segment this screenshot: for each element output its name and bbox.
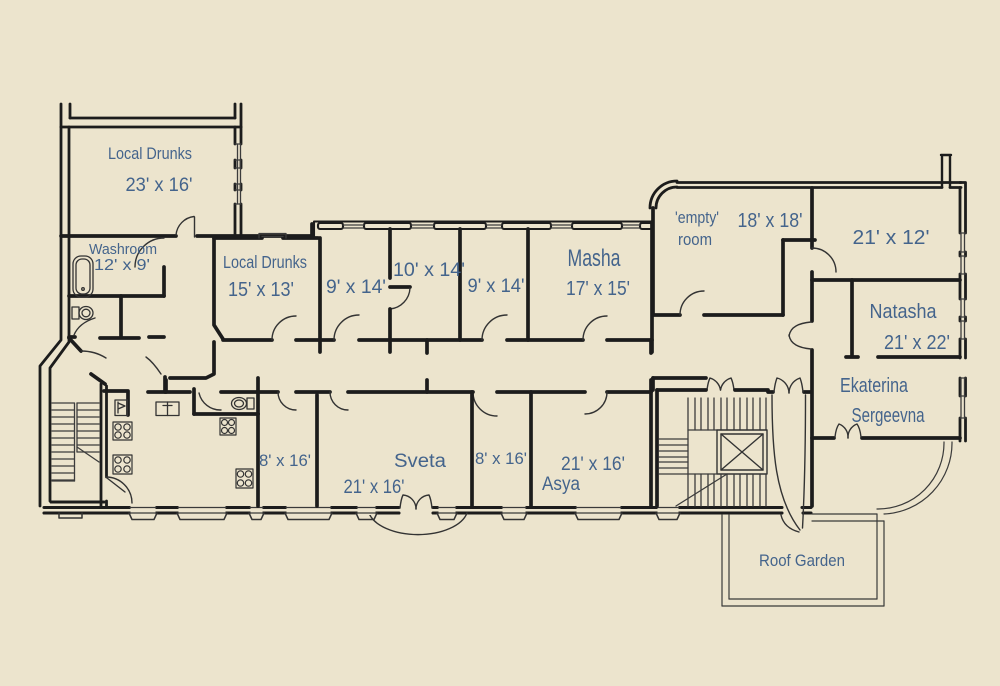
svg-text:9' x 14': 9' x 14' xyxy=(468,276,525,297)
svg-text:23' x 16': 23' x 16' xyxy=(126,175,193,196)
svg-text:17' x 15': 17' x 15' xyxy=(566,278,630,300)
svg-text:9' x 14': 9' x 14' xyxy=(326,277,386,298)
svg-text:Natasha: Natasha xyxy=(870,301,938,323)
svg-text:12' x 9': 12' x 9' xyxy=(94,257,150,274)
svg-text:Washroom: Washroom xyxy=(89,242,157,258)
svg-text:Sveta: Sveta xyxy=(394,451,446,472)
svg-text:21' x 16': 21' x 16' xyxy=(561,454,625,475)
svg-text:Local Drunks: Local Drunks xyxy=(223,252,307,272)
svg-text:8' x 16': 8' x 16' xyxy=(475,449,527,468)
svg-text:8' x 16': 8' x 16' xyxy=(259,451,311,470)
svg-text:21' x 22': 21' x 22' xyxy=(884,332,950,354)
svg-text:Sergeevna: Sergeevna xyxy=(852,405,926,427)
svg-text:21' x 12': 21' x 12' xyxy=(853,227,930,249)
svg-text:10' x 14': 10' x 14' xyxy=(393,260,465,281)
svg-text:Roof Garden: Roof Garden xyxy=(759,551,845,570)
svg-text:15' x 13': 15' x 13' xyxy=(228,279,294,301)
svg-text:'empty': 'empty' xyxy=(675,208,719,227)
svg-text:Local Drunks: Local Drunks xyxy=(108,144,192,163)
svg-text:Ekaterina: Ekaterina xyxy=(840,375,909,397)
svg-text:Asya: Asya xyxy=(542,474,580,495)
svg-text:18' x 18': 18' x 18' xyxy=(738,210,803,232)
svg-text:21' x 16': 21' x 16' xyxy=(344,477,405,498)
svg-text:room: room xyxy=(678,230,712,249)
svg-text:Masha: Masha xyxy=(568,245,621,272)
